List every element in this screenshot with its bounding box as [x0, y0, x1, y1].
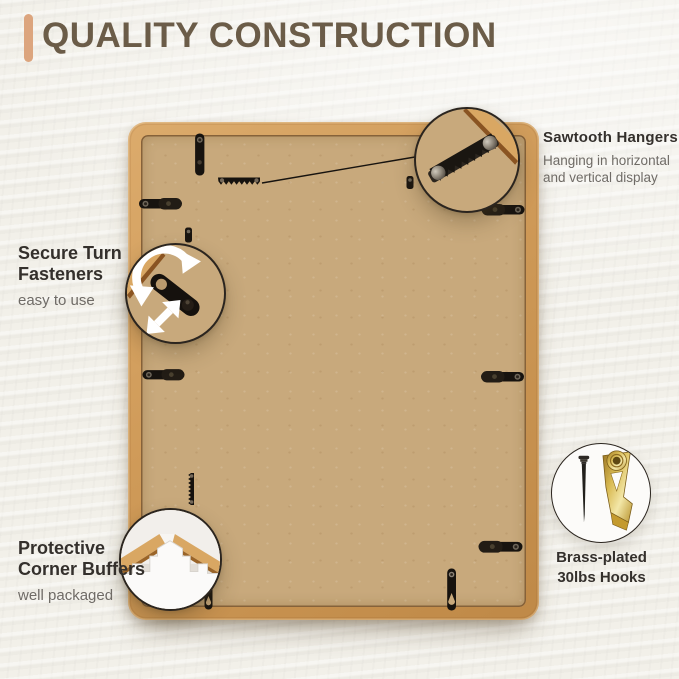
feature-title: Sawtooth Hangers: [543, 129, 678, 146]
sawtooth-hanger-icon: [217, 175, 261, 187]
sawtooth-hanger-vertical-icon: [184, 472, 196, 506]
feature-corner-buffers: Protective Corner Buffers well packaged: [18, 538, 145, 604]
callout-circle-turn-fastener: [125, 243, 226, 344]
feature-title-line1: Protective: [18, 538, 145, 559]
feature-title-line1: Secure Turn: [18, 243, 122, 264]
turn-fastener-icon: [478, 538, 523, 555]
feature-desc-line2: and vertical display: [543, 169, 678, 186]
feature-title-line2: Fasteners: [18, 264, 122, 285]
feature-desc-line1: Hanging in horizontal: [543, 152, 678, 169]
feature-sawtooth-hangers: Sawtooth Hangers Hanging in horizontal a…: [543, 129, 678, 186]
feature-desc: easy to use: [18, 292, 122, 309]
feature-brass-hooks: Brass-plated 30lbs Hooks: [531, 548, 672, 588]
sawtooth-hanger-stub-icon: [405, 175, 415, 190]
hooks-illustration: [552, 444, 650, 542]
keyhole-hanger-icon: [444, 568, 459, 611]
turn-fastener-icon: [192, 133, 207, 176]
feature-desc: well packaged: [18, 587, 145, 604]
page-title: QUALITY CONSTRUCTION: [42, 16, 497, 56]
feature-title-line2: Corner Buffers: [18, 559, 145, 580]
callout-circle-hooks: [551, 443, 651, 543]
product-infographic: QUALITY CONSTRUCTION: [0, 0, 679, 679]
title-accent-bar: [24, 14, 33, 62]
magnified-sawtooth-hanger: [416, 109, 518, 211]
feature-title-line1: Brass-plated: [531, 548, 672, 568]
feature-title-line2: 30lbs Hooks: [531, 568, 672, 588]
turn-fastener-icon: [142, 367, 185, 382]
magnified-turn-fastener: [127, 245, 224, 342]
turn-fastener-icon: [480, 369, 525, 384]
turn-fastener-icon: [138, 196, 183, 211]
nail-icon: [578, 456, 589, 523]
feature-secure-turn-fasteners: Secure Turn Fasteners easy to use: [18, 243, 122, 309]
brass-hook-icon: [603, 451, 632, 530]
callout-circle-sawtooth: [414, 107, 520, 213]
turn-fastener-stub-icon: [184, 227, 193, 243]
